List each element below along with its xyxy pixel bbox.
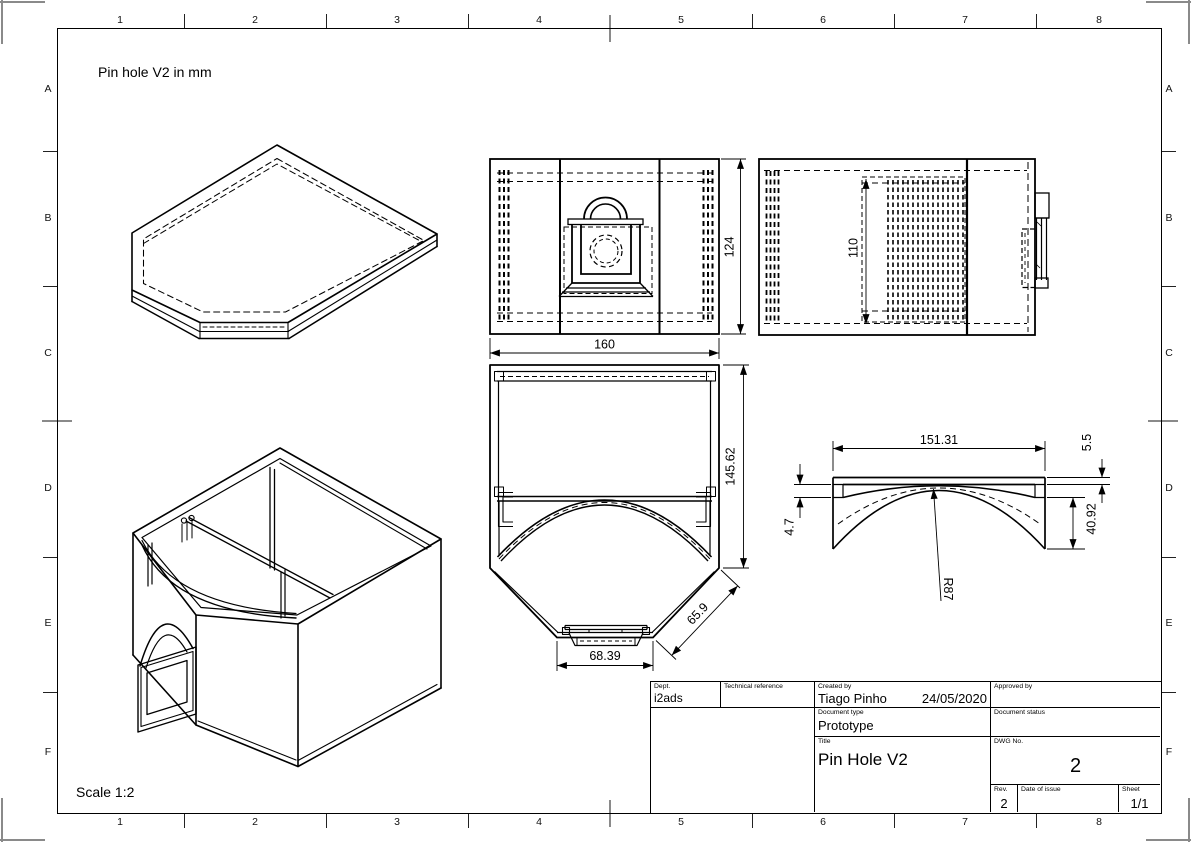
dwg-no-value: 2	[994, 755, 1157, 778]
zone-tick	[752, 14, 754, 28]
dim-arch-step: 4.7	[783, 518, 797, 535]
grid-row-label: A	[1165, 83, 1172, 95]
grid-row-label: B	[1165, 212, 1172, 224]
grid-row-label: F	[1166, 746, 1172, 758]
plan-view: 145.62 68.39 65.9	[478, 340, 780, 690]
sheet-value: 1/1	[1122, 796, 1157, 811]
title-block-date-of-issue-cell: Date of issue	[1018, 785, 1119, 812]
corner-trim-mark	[1, 0, 3, 44]
title-label: Title	[818, 738, 987, 746]
title-block-rev-cell: Rev. 2	[991, 785, 1018, 812]
date-of-issue-label: Date of issue	[1021, 786, 1115, 794]
dim-plan-chamfer: 65.9	[684, 600, 711, 627]
grid-col-label: 6	[820, 14, 826, 26]
grid-col-label: 4	[536, 14, 542, 26]
zone-tick	[326, 14, 328, 28]
dim-plan-height: 145.62	[724, 447, 738, 485]
zone-tick	[184, 14, 186, 28]
title-block-dept-cell: Dept. i2ads	[651, 682, 721, 708]
rev-value: 2	[994, 796, 1014, 811]
dim-arch-end-height: 40.92	[1085, 503, 1099, 534]
dwg-no-label: DWG No.	[994, 738, 1157, 746]
corner-trim-mark	[1146, 1, 1191, 3]
document-status-label: Document status	[994, 709, 1157, 717]
grid-row-label: F	[45, 746, 51, 758]
grid-col-label: 5	[678, 14, 684, 26]
dept-label: Dept.	[654, 683, 717, 691]
corner-trim-mark	[1, 798, 3, 842]
grid-row-label: A	[44, 83, 51, 95]
grid-col-label: 8	[1096, 816, 1102, 828]
approved-by-label: Approved by	[994, 683, 1157, 691]
grid-row-label: E	[44, 617, 51, 629]
grid-col-label: 6	[820, 816, 826, 828]
grid-row-label: C	[44, 347, 52, 359]
dim-arch-top-thickness: 5.5	[1080, 434, 1094, 451]
zone-tick	[43, 151, 57, 153]
title-block-title-cell: Title Pin Hole V2	[815, 737, 991, 812]
corner-trim-mark	[1188, 0, 1190, 44]
grid-col-label: 2	[252, 816, 258, 828]
sheet-label: Sheet	[1122, 786, 1157, 794]
grid-row-label: E	[1165, 617, 1172, 629]
side-view: 110	[750, 148, 1065, 348]
grid-row-label: B	[44, 212, 51, 224]
technical-reference-label: Technical reference	[724, 683, 811, 691]
dept-value: i2ads	[654, 691, 717, 705]
document-type-label: Document type	[818, 709, 987, 717]
dim-arch-width: 151.31	[920, 433, 958, 447]
zone-tick	[468, 814, 470, 828]
title-value: Pin Hole V2	[818, 750, 987, 770]
document-type-value: Prototype	[818, 718, 987, 733]
grid-col-label: 1	[117, 816, 123, 828]
zone-tick	[326, 814, 328, 828]
title-block-created-by-cell: Created by Tiago Pinho 24/05/2020	[815, 682, 991, 708]
grid-col-label: 8	[1096, 14, 1102, 26]
zone-tick	[1162, 557, 1176, 559]
title-block-dwg-cell: DWG No. 2	[991, 737, 1160, 785]
title-block-technical-reference-cell: Technical reference	[721, 682, 815, 708]
rev-label: Rev.	[994, 786, 1014, 794]
grid-col-label: 2	[252, 14, 258, 26]
zone-tick	[1036, 14, 1038, 28]
title-block-document-status-cell: Document status	[991, 708, 1160, 737]
grid-row-label: D	[44, 482, 52, 494]
zone-tick	[43, 557, 57, 559]
grid-row-label: C	[1165, 347, 1173, 359]
zone-tick	[1162, 151, 1176, 153]
zone-tick	[184, 814, 186, 828]
zone-tick	[1036, 814, 1038, 828]
grid-col-label: 7	[962, 14, 968, 26]
zone-tick	[1162, 692, 1176, 694]
zone-tick	[468, 14, 470, 28]
title-block: Dept. i2ads Technical reference Created …	[650, 681, 1162, 814]
zone-tick	[43, 692, 57, 694]
grid-col-label: 7	[962, 816, 968, 828]
title-block-approved-by-cell: Approved by	[991, 682, 1160, 708]
grid-col-label: 4	[536, 816, 542, 828]
created-by-label: Created by	[818, 683, 987, 691]
arch-section-view: 151.31 5.5 4.7 40.92 R87	[778, 425, 1123, 625]
box-isometric-view	[105, 430, 485, 800]
dim-front-height: 124	[723, 237, 737, 258]
corner-trim-mark	[0, 839, 45, 841]
zone-tick	[43, 286, 57, 288]
dim-plan-bottom-width: 68.39	[589, 649, 620, 663]
title-block-empty-cell	[651, 708, 815, 812]
grid-row-label: D	[1165, 482, 1173, 494]
dim-side-inner-height: 110	[847, 238, 861, 258]
drawing-sheet: 1 2 3 4 5 6 7 8 1 2 3 4 5 6 7 8 A B C D …	[0, 0, 1191, 842]
zone-tick	[752, 814, 754, 828]
grid-col-label: 1	[117, 14, 123, 26]
corner-trim-mark	[1146, 839, 1191, 841]
dim-arch-radius: R87	[941, 578, 955, 601]
grid-col-label: 3	[394, 816, 400, 828]
corner-trim-mark	[0, 1, 45, 3]
lid-isometric-view	[85, 135, 475, 365]
title-block-sheet-cell: Sheet 1/1	[1119, 785, 1160, 812]
front-view: 124 160	[480, 148, 770, 362]
drawing-note: Pin hole V2 in mm	[98, 64, 212, 80]
grid-col-label: 3	[394, 14, 400, 26]
created-date: 24/05/2020	[922, 691, 987, 706]
title-block-document-type-cell: Document type Prototype	[815, 708, 991, 737]
grid-col-label: 5	[678, 816, 684, 828]
created-by-value: Tiago Pinho	[818, 691, 887, 706]
zone-tick	[1162, 286, 1176, 288]
zone-tick	[894, 814, 896, 828]
corner-trim-mark	[1188, 798, 1190, 842]
zone-tick	[894, 14, 896, 28]
